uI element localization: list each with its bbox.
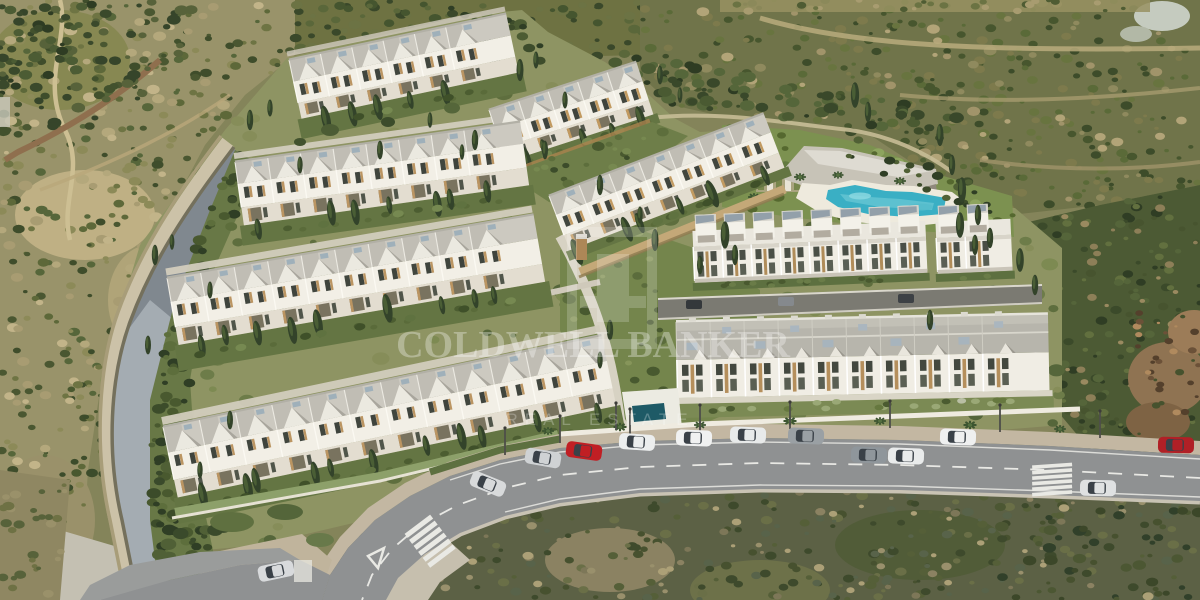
- svg-text:COLDWELL BANKER: COLDWELL BANKER: [396, 324, 790, 366]
- svg-text:REAL ESTATE: REAL ESTATE: [505, 410, 694, 429]
